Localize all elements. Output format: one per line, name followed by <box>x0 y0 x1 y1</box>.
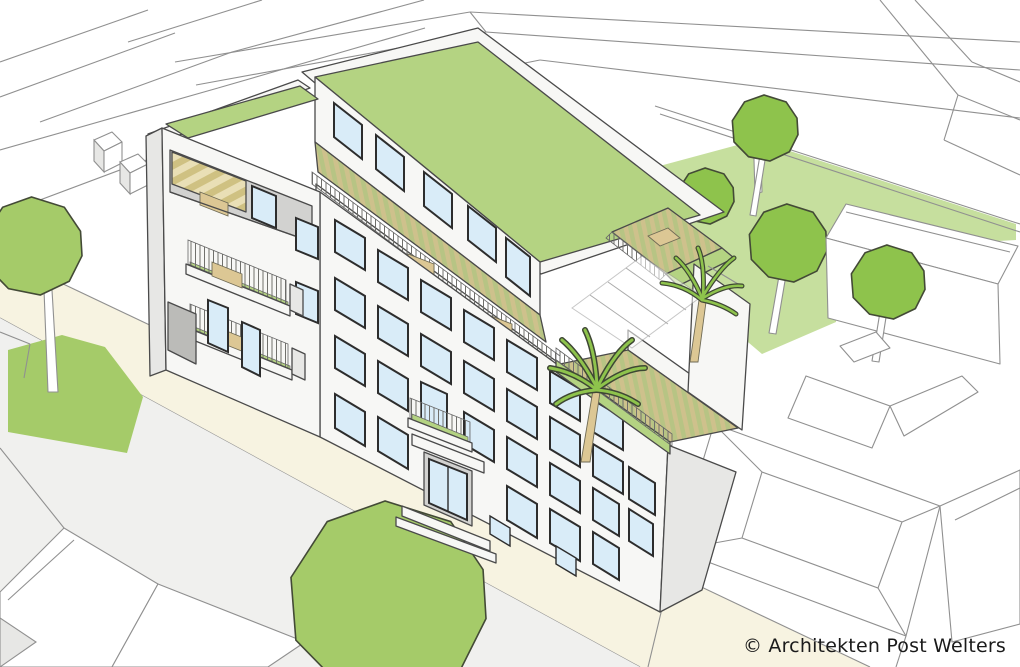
copyright-caption: © Architekten Post Welters <box>743 635 1006 657</box>
rendering-stage: © Architekten Post Welters <box>0 0 1020 667</box>
site-plan-rendering: © Architekten Post Welters <box>0 0 1020 667</box>
